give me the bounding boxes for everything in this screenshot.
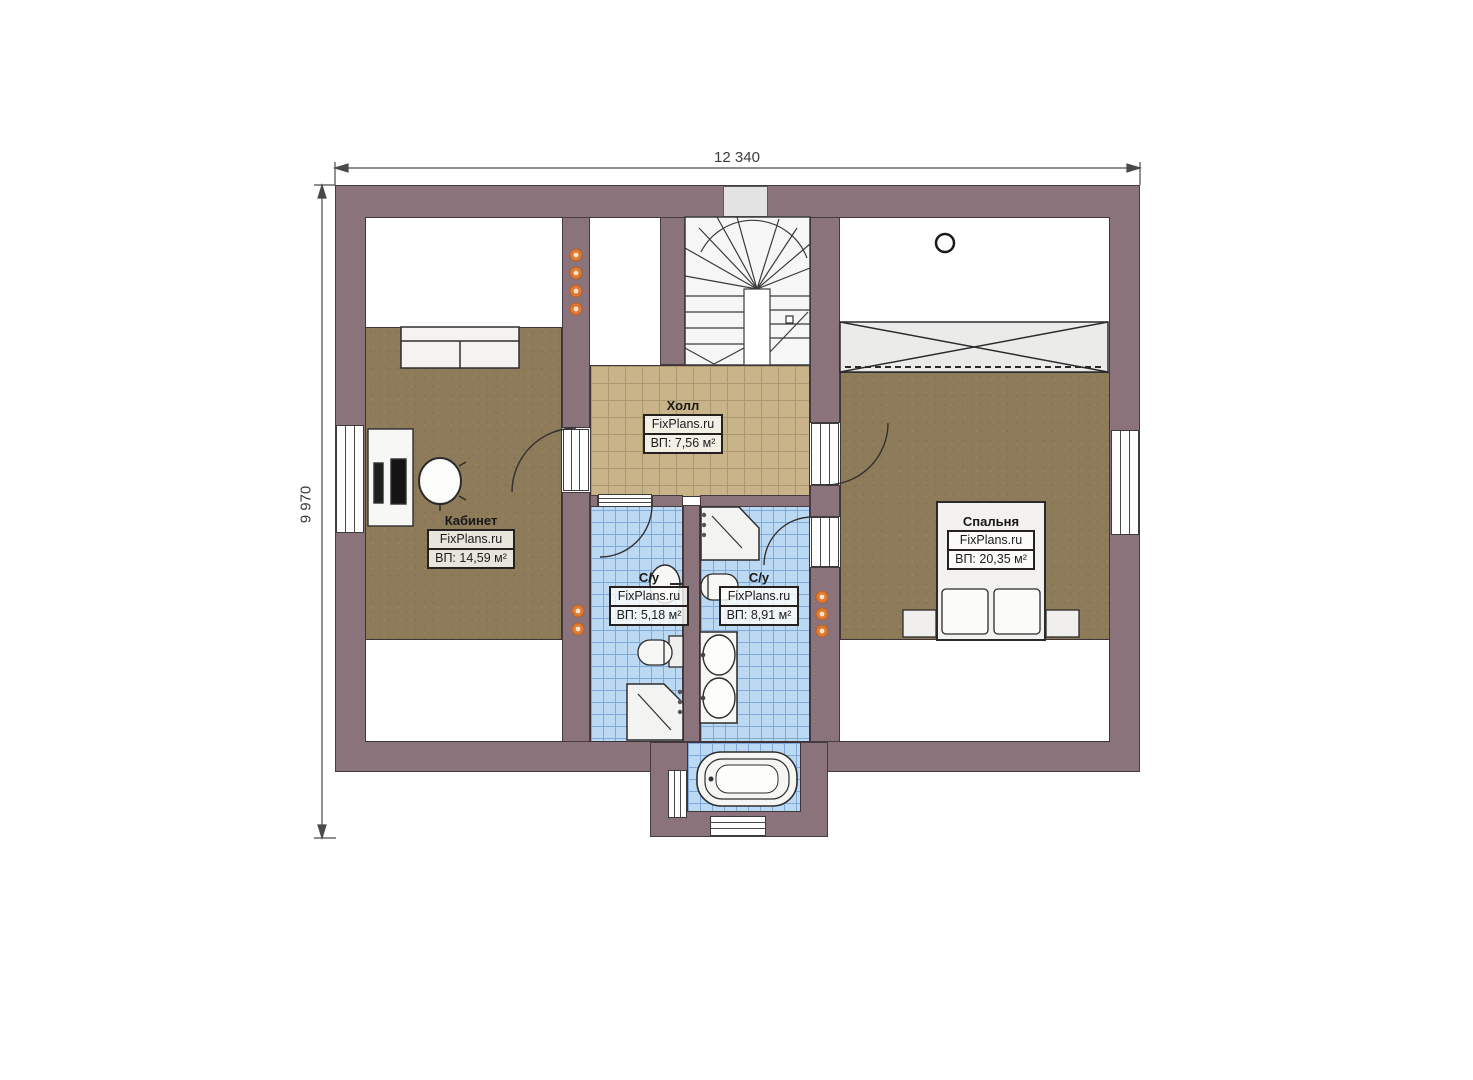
brand-watermark: FixPlans.ru	[949, 532, 1033, 551]
room-area: ВП: 8,91 м²	[721, 607, 798, 624]
nightstand-left	[903, 610, 936, 637]
room-area: ВП: 20,35 м²	[949, 551, 1033, 568]
door-arc-office	[512, 428, 576, 492]
floor-plan-canvas: 12 340 9 970 Холл FixPlans.ru ВП: 7,56 м…	[0, 0, 1473, 1080]
door-arc-bath-small	[600, 505, 652, 557]
pillow	[942, 589, 988, 634]
wall-light	[572, 623, 584, 635]
room-info-box: FixPlans.ru ВП: 14,59 м²	[427, 529, 515, 569]
brand-watermark: FixPlans.ru	[721, 588, 798, 607]
room-name: Холл	[667, 398, 700, 413]
door-arc-bedroom	[826, 423, 888, 485]
brand-watermark: FixPlans.ru	[645, 416, 722, 435]
wall-light	[570, 303, 582, 315]
nightstand-right	[1046, 610, 1079, 637]
pillow	[994, 589, 1040, 634]
room-label-bath-large: С/у FixPlans.ru ВП: 8,91 м²	[713, 570, 805, 626]
vent-pipe	[936, 234, 954, 252]
sofa	[401, 327, 519, 368]
staircase	[685, 217, 810, 365]
brand-watermark: FixPlans.ru	[429, 531, 513, 550]
desk	[368, 429, 413, 526]
room-info-box: FixPlans.ru ВП: 5,18 м²	[609, 586, 690, 626]
wardrobe	[840, 322, 1108, 372]
wall-light	[570, 267, 582, 279]
dimension-width-label: 12 340	[687, 149, 787, 166]
room-name: С/у	[639, 570, 659, 585]
wall-light	[572, 605, 584, 617]
bathtub	[697, 752, 797, 806]
wall-light	[570, 249, 582, 261]
dimension-height-label: 9 970	[298, 473, 315, 537]
room-info-box: FixPlans.ru ВП: 20,35 м²	[947, 530, 1035, 570]
door-arc-bath-large	[764, 517, 812, 565]
room-label-office: Кабинет FixPlans.ru ВП: 14,59 м²	[421, 513, 521, 569]
vanity-double-sink	[700, 632, 737, 723]
room-name: С/у	[749, 570, 769, 585]
shower-bath-large	[701, 507, 759, 560]
wall-light	[570, 285, 582, 297]
room-area: ВП: 14,59 м²	[429, 550, 513, 567]
office-chair	[419, 458, 466, 511]
room-name: Кабинет	[445, 513, 498, 528]
room-label-bath-small: С/у FixPlans.ru ВП: 5,18 м²	[603, 570, 695, 626]
brand-watermark: FixPlans.ru	[611, 588, 688, 607]
room-area: ВП: 7,56 м²	[645, 435, 722, 452]
wall-light	[816, 608, 828, 620]
room-area: ВП: 5,18 м²	[611, 607, 688, 624]
room-info-box: FixPlans.ru ВП: 7,56 м²	[643, 414, 724, 454]
room-label-bedroom: Спальня FixPlans.ru ВП: 20,35 м²	[940, 514, 1042, 570]
room-label-hall: Холл FixPlans.ru ВП: 7,56 м²	[633, 398, 733, 454]
wall-light	[816, 591, 828, 603]
room-name: Спальня	[963, 514, 1019, 529]
toilet-bath-small	[638, 636, 683, 667]
wall-light	[816, 625, 828, 637]
room-info-box: FixPlans.ru ВП: 8,91 м²	[719, 586, 800, 626]
shower-bath-small	[627, 684, 683, 740]
